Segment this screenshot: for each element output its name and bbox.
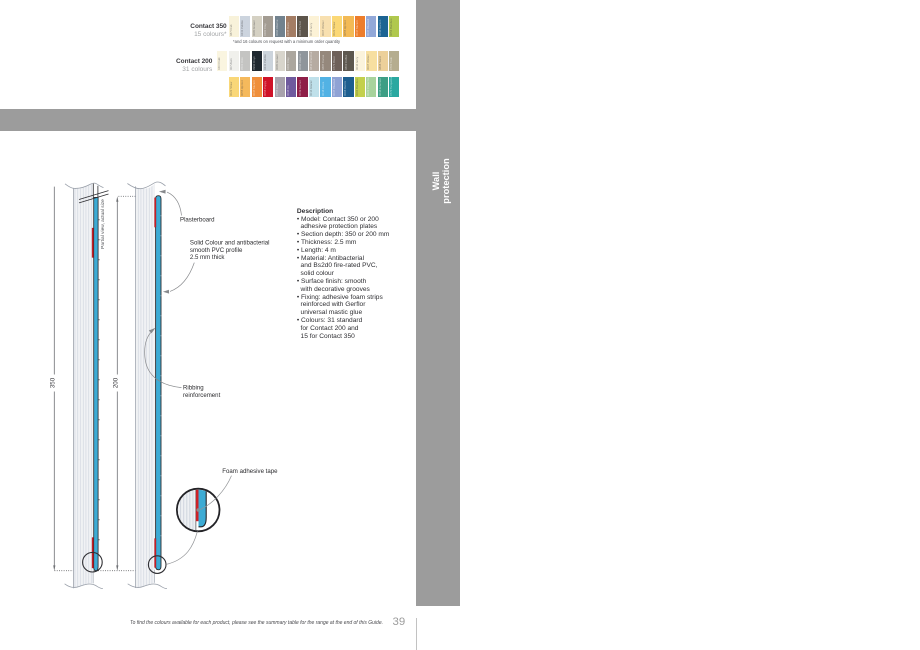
svg-text:Foam adhesive tape: Foam adhesive tape xyxy=(222,468,278,475)
svg-text:Solid Colour and antibacterial: Solid Colour and antibacterial xyxy=(190,239,270,246)
svg-text:2.5 mm thick: 2.5 mm thick xyxy=(190,254,225,261)
svg-text:350: 350 xyxy=(50,377,57,388)
svg-text:smooth PVC profile: smooth PVC profile xyxy=(190,247,243,254)
svg-text:Ribbing: Ribbing xyxy=(183,384,204,391)
svg-text:200: 200 xyxy=(113,377,120,388)
svg-text:reinforcement: reinforcement xyxy=(183,392,221,399)
svg-text:Partial view, actual size: Partial view, actual size xyxy=(100,199,106,249)
svg-text:Plasterboard: Plasterboard xyxy=(180,217,215,224)
